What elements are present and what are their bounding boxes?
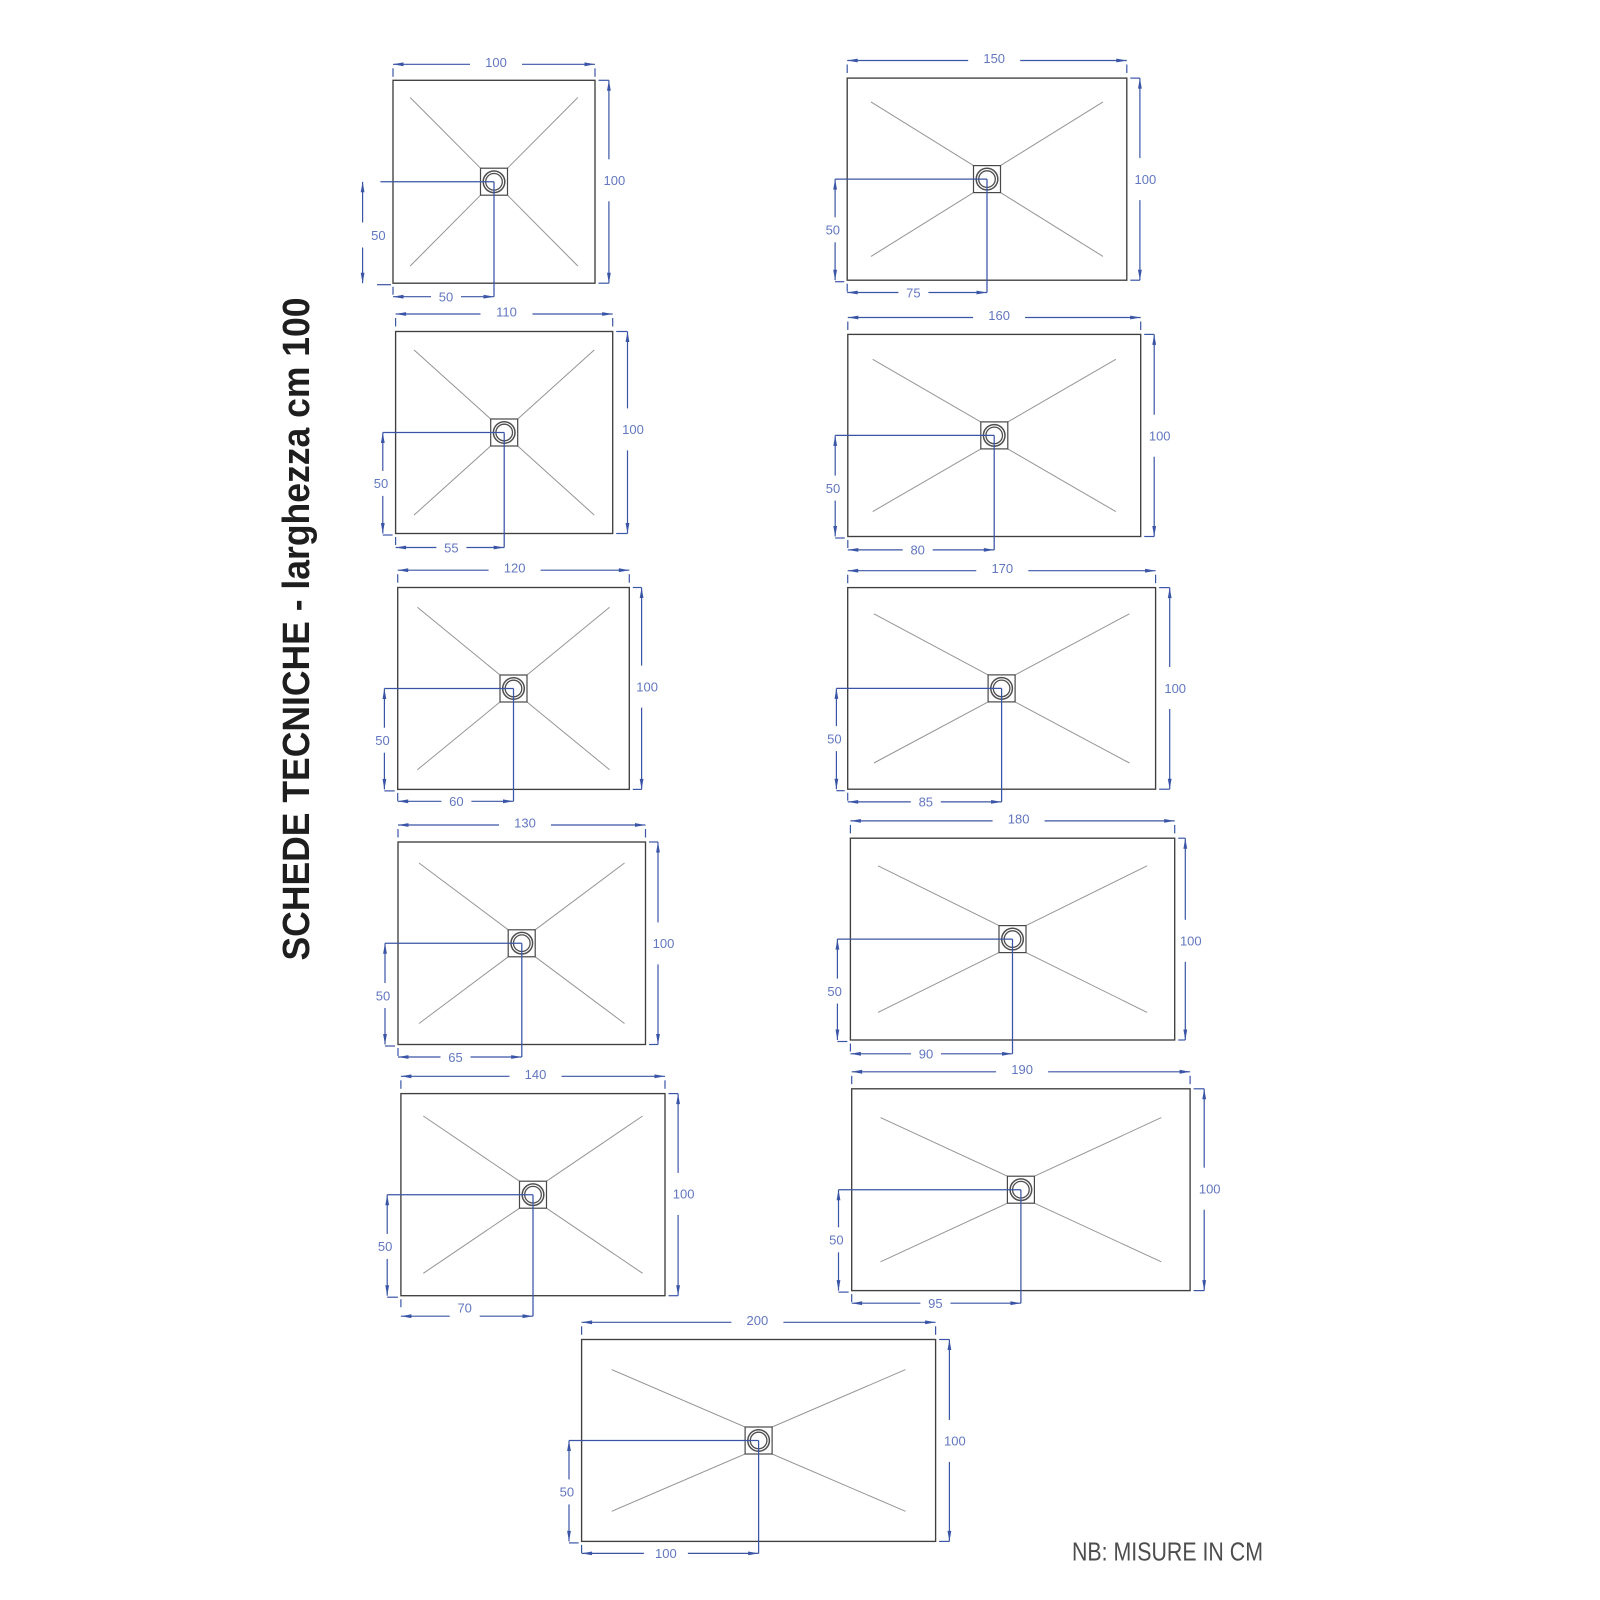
svg-text:150: 150 xyxy=(983,51,1005,66)
svg-text:65: 65 xyxy=(448,1050,462,1065)
svg-text:130: 130 xyxy=(514,816,536,831)
svg-text:SCHEDE TECNICHE - larghezza cm: SCHEDE TECNICHE - larghezza cm 100 xyxy=(276,298,318,961)
svg-text:50: 50 xyxy=(374,476,388,491)
svg-text:100: 100 xyxy=(1180,934,1202,949)
svg-text:50: 50 xyxy=(827,984,841,999)
svg-text:50: 50 xyxy=(829,1233,843,1248)
svg-text:100: 100 xyxy=(673,1187,695,1202)
svg-text:50: 50 xyxy=(439,290,453,305)
svg-text:50: 50 xyxy=(376,988,390,1003)
svg-text:180: 180 xyxy=(1008,811,1030,826)
svg-text:50: 50 xyxy=(378,1239,392,1254)
svg-text:50: 50 xyxy=(826,481,840,496)
svg-text:100: 100 xyxy=(1199,1182,1221,1197)
svg-text:90: 90 xyxy=(919,1047,933,1062)
svg-text:55: 55 xyxy=(444,540,458,555)
svg-text:95: 95 xyxy=(928,1296,942,1311)
svg-text:80: 80 xyxy=(910,543,924,558)
svg-text:120: 120 xyxy=(504,561,526,576)
svg-text:70: 70 xyxy=(457,1300,471,1315)
svg-text:60: 60 xyxy=(449,794,463,809)
svg-text:100: 100 xyxy=(604,173,626,188)
svg-text:50: 50 xyxy=(826,223,840,238)
svg-text:160: 160 xyxy=(988,308,1010,323)
svg-text:170: 170 xyxy=(991,561,1013,576)
svg-text:190: 190 xyxy=(1011,1062,1033,1077)
svg-text:100: 100 xyxy=(944,1434,966,1449)
svg-text:75: 75 xyxy=(906,285,920,300)
svg-text:50: 50 xyxy=(560,1485,574,1500)
svg-text:100: 100 xyxy=(655,1546,677,1561)
svg-text:100: 100 xyxy=(622,422,644,437)
svg-text:50: 50 xyxy=(371,228,385,243)
svg-text:200: 200 xyxy=(747,1313,769,1328)
svg-text:NB: MISURE IN CM: NB: MISURE IN CM xyxy=(1072,1537,1263,1567)
svg-text:100: 100 xyxy=(485,55,507,70)
svg-text:50: 50 xyxy=(375,733,389,748)
svg-text:110: 110 xyxy=(496,305,517,320)
svg-text:100: 100 xyxy=(653,936,675,951)
svg-text:140: 140 xyxy=(525,1067,547,1082)
svg-text:100: 100 xyxy=(1135,172,1157,187)
svg-text:100: 100 xyxy=(1149,429,1171,444)
svg-text:50: 50 xyxy=(827,731,841,746)
svg-text:85: 85 xyxy=(919,795,933,810)
svg-text:100: 100 xyxy=(636,679,658,694)
svg-text:100: 100 xyxy=(1164,681,1186,696)
